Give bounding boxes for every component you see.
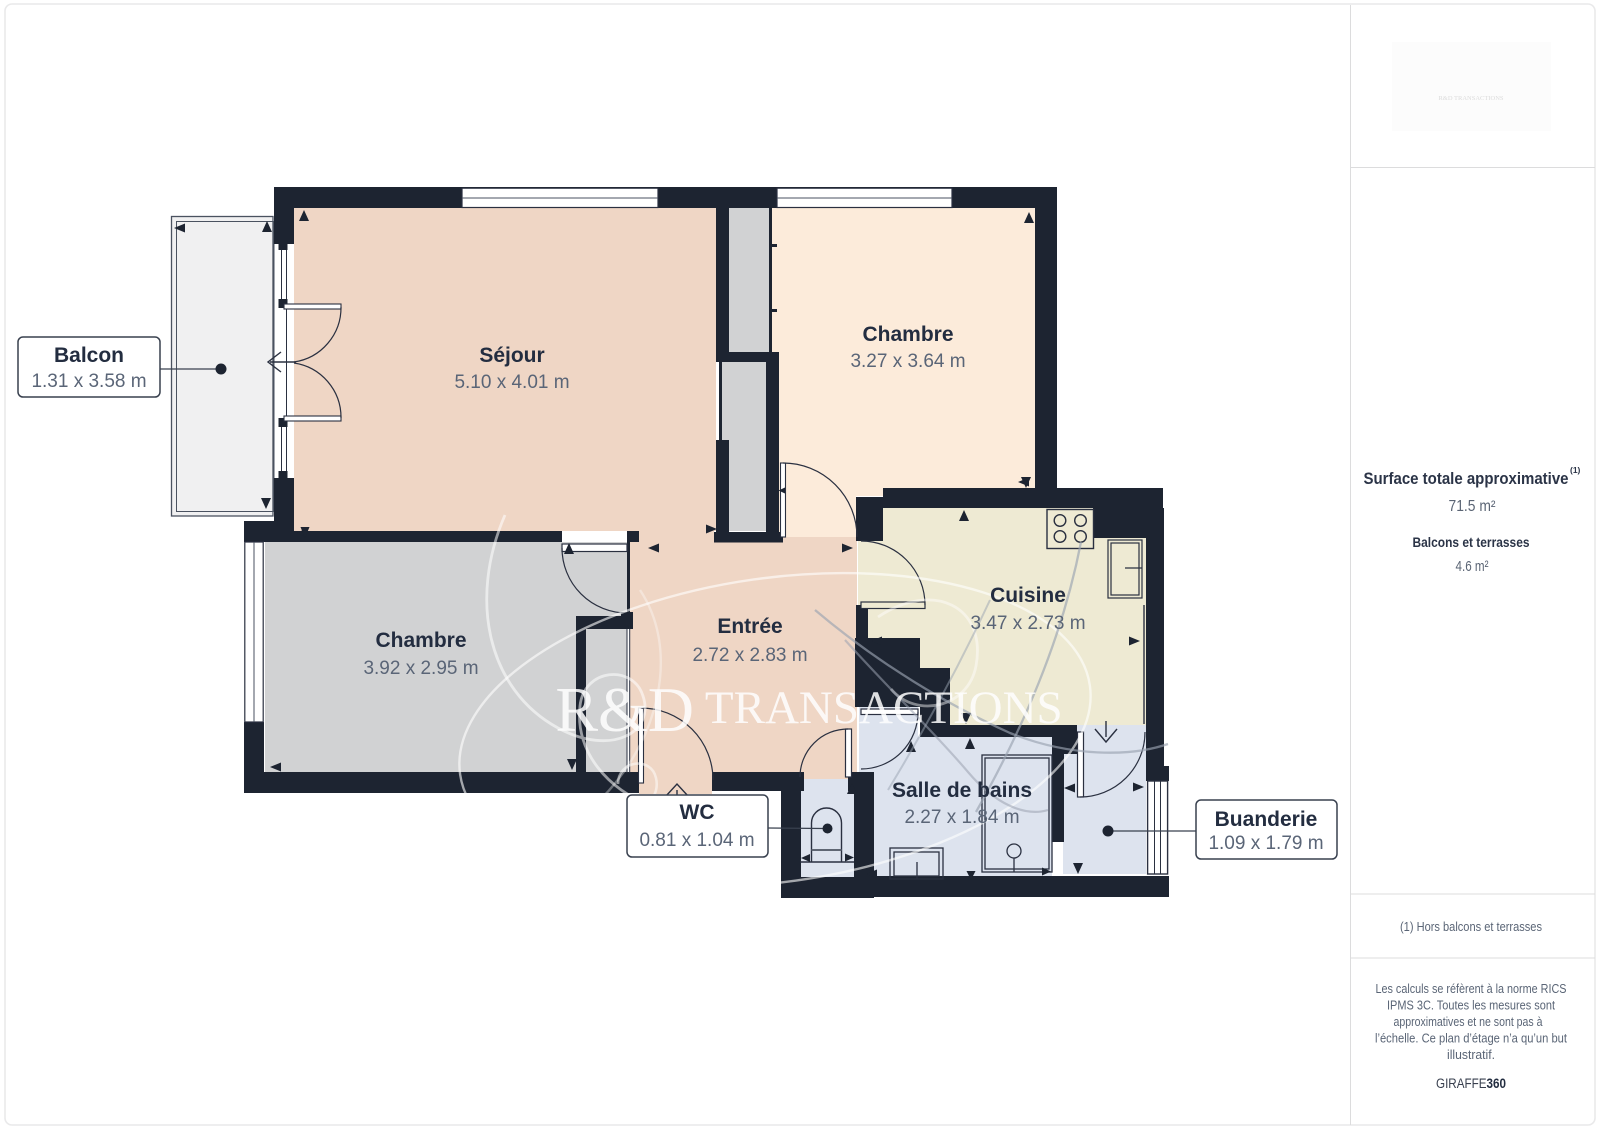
svg-text:Entrée: Entrée [717,615,782,638]
svg-text:Salle de bains: Salle de bains [892,779,1032,802]
svg-text:4.6 m²: 4.6 m² [1456,558,1489,575]
svg-text:Chambre: Chambre [375,629,466,652]
svg-text:2.27 x 1.84 m: 2.27 x 1.84 m [904,807,1019,828]
svg-text:71.5 m²: 71.5 m² [1449,498,1496,515]
svg-text:Les calculs se réfèrent à la n: Les calculs se réfèrent à la norme RICS [1376,982,1567,996]
svg-text:Chambre: Chambre [862,323,953,346]
svg-text:Surface totale approximative: Surface totale approximative [1364,470,1569,488]
svg-text:Balcons et terrasses: Balcons et terrasses [1413,534,1530,550]
svg-text:GIRAFFE360: GIRAFFE360 [1436,1076,1506,1091]
svg-text:5.10 x 4.01 m: 5.10 x 4.01 m [454,372,569,393]
svg-text:(1) Hors balcons et terrasses: (1) Hors balcons et terrasses [1400,920,1542,934]
svg-text:IPMS 3C. Toutes les mesures so: IPMS 3C. Toutes les mesures sont [1387,999,1555,1013]
svg-text:0.81 x 1.04 m: 0.81 x 1.04 m [639,830,754,851]
svg-text:1.09 x 1.79 m: 1.09 x 1.79 m [1208,833,1323,854]
svg-text:1.31 x 3.58 m: 1.31 x 3.58 m [31,371,146,392]
svg-text:l’échelle. Ce plan d’étage n’a: l’échelle. Ce plan d’étage n’a qu’un but [1375,1032,1567,1046]
svg-text:(1): (1) [1570,465,1581,475]
svg-text:Balcon: Balcon [54,344,124,367]
svg-text:3.92 x 2.95 m: 3.92 x 2.95 m [363,658,478,679]
svg-text:2.72 x 2.83 m: 2.72 x 2.83 m [692,645,807,666]
svg-text:Séjour: Séjour [479,344,544,367]
svg-text:3.47 x 2.73 m: 3.47 x 2.73 m [970,613,1085,634]
svg-text:3.27 x 3.64 m: 3.27 x 3.64 m [850,351,965,372]
svg-text:approximatives et ne sont pas: approximatives et ne sont pas à [1394,1015,1543,1029]
svg-text:R&D TRANSACTIONS: R&D TRANSACTIONS [1438,95,1503,102]
svg-text:Cuisine: Cuisine [990,584,1066,607]
svg-text:Buanderie: Buanderie [1215,808,1318,831]
svg-text:WC: WC [680,801,715,824]
svg-text:illustratif.: illustratif. [1447,1048,1495,1062]
